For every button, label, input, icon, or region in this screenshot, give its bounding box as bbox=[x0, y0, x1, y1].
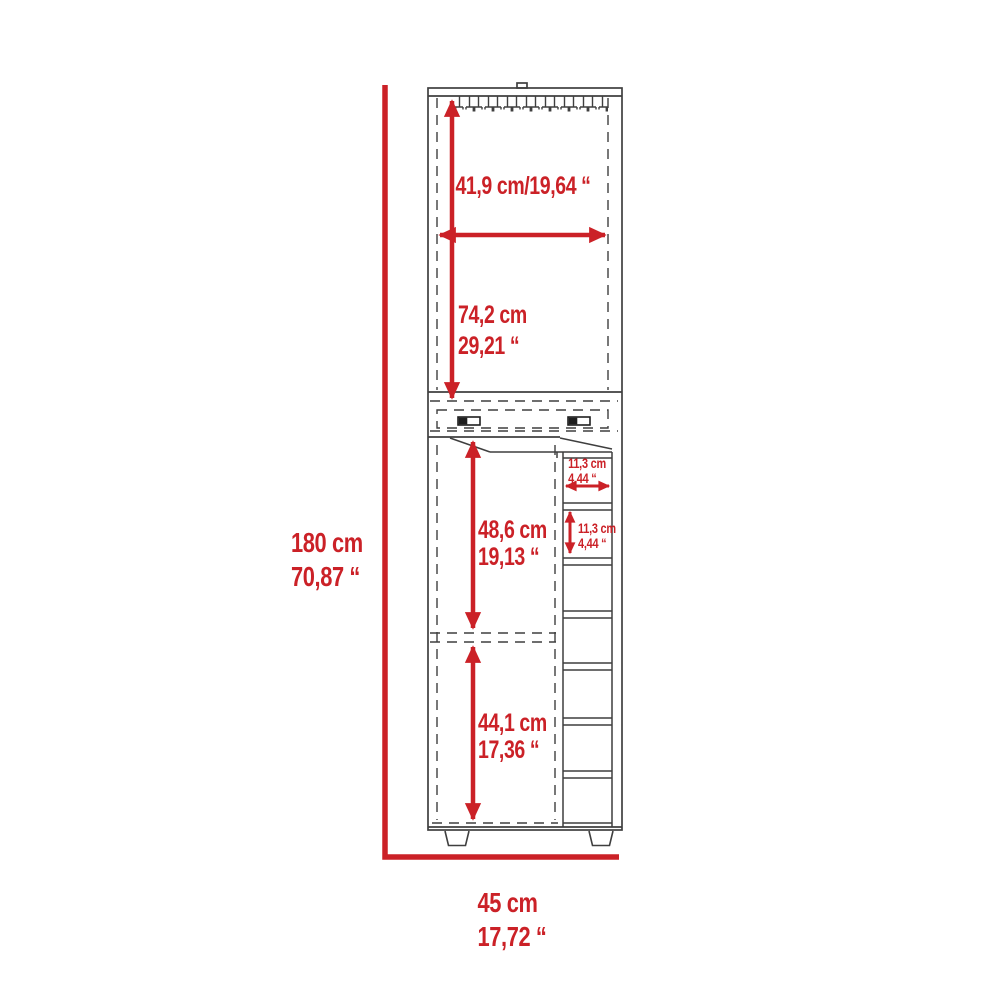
dimension-value-cm: 45 cm bbox=[478, 886, 547, 920]
cabinet-feet bbox=[445, 831, 613, 846]
dimension-label-total-height: 180 cm 70,87 “ bbox=[291, 526, 363, 594]
furniture-dimension-diagram: 41,9 cm/19,64 “ 74,2 cm 29,21 “ 180 cm 7… bbox=[0, 0, 1000, 1000]
dimension-value-inch: 4,44 “ bbox=[578, 536, 616, 551]
cabinet-line-drawing bbox=[0, 0, 1000, 1000]
dimension-value-cm: 48,6 cm bbox=[478, 517, 547, 544]
dimension-label-top-width: 41,9 cm/19,64 “ bbox=[455, 171, 590, 201]
dimension-value-cm: 11,3 cm bbox=[578, 521, 616, 536]
dimension-label-base-width: 45 cm 17,72 “ bbox=[478, 886, 547, 954]
dimension-value-inch: 19,13 “ bbox=[478, 544, 547, 571]
door-handles bbox=[458, 417, 590, 425]
dimension-value-cm: 44,1 cm bbox=[478, 710, 547, 737]
dimension-label-cubby-width: 11,3 cm 4,44 “ bbox=[568, 456, 606, 486]
dimension-value-cm: 11,3 cm bbox=[568, 456, 606, 471]
bottle-cubby-column bbox=[563, 452, 612, 827]
dimension-value-inch: 17,36 “ bbox=[478, 737, 547, 764]
wine-glass-rack bbox=[455, 96, 608, 118]
dimension-label-lower-height: 44,1 cm 17,36 “ bbox=[478, 710, 547, 764]
dimension-value-cm: 180 cm bbox=[291, 526, 363, 560]
dimension-label-middle-height: 48,6 cm 19,13 “ bbox=[478, 517, 547, 571]
dimension-label-cubby-height: 11,3 cm 4,44 “ bbox=[578, 521, 616, 551]
dimension-value: 41,9 cm/19,64 “ bbox=[455, 171, 590, 201]
dimension-value-inch: 70,87 “ bbox=[291, 560, 363, 594]
top-mount-detail bbox=[517, 83, 527, 88]
dimension-value-cm: 74,2 cm bbox=[458, 300, 527, 331]
dimension-value-inch: 29,21 “ bbox=[458, 331, 527, 362]
dimension-value-inch: 17,72 “ bbox=[478, 920, 547, 954]
dimension-value-inch: 4,44 “ bbox=[568, 471, 606, 486]
dimension-label-upper-height: 74,2 cm 29,21 “ bbox=[458, 300, 527, 362]
